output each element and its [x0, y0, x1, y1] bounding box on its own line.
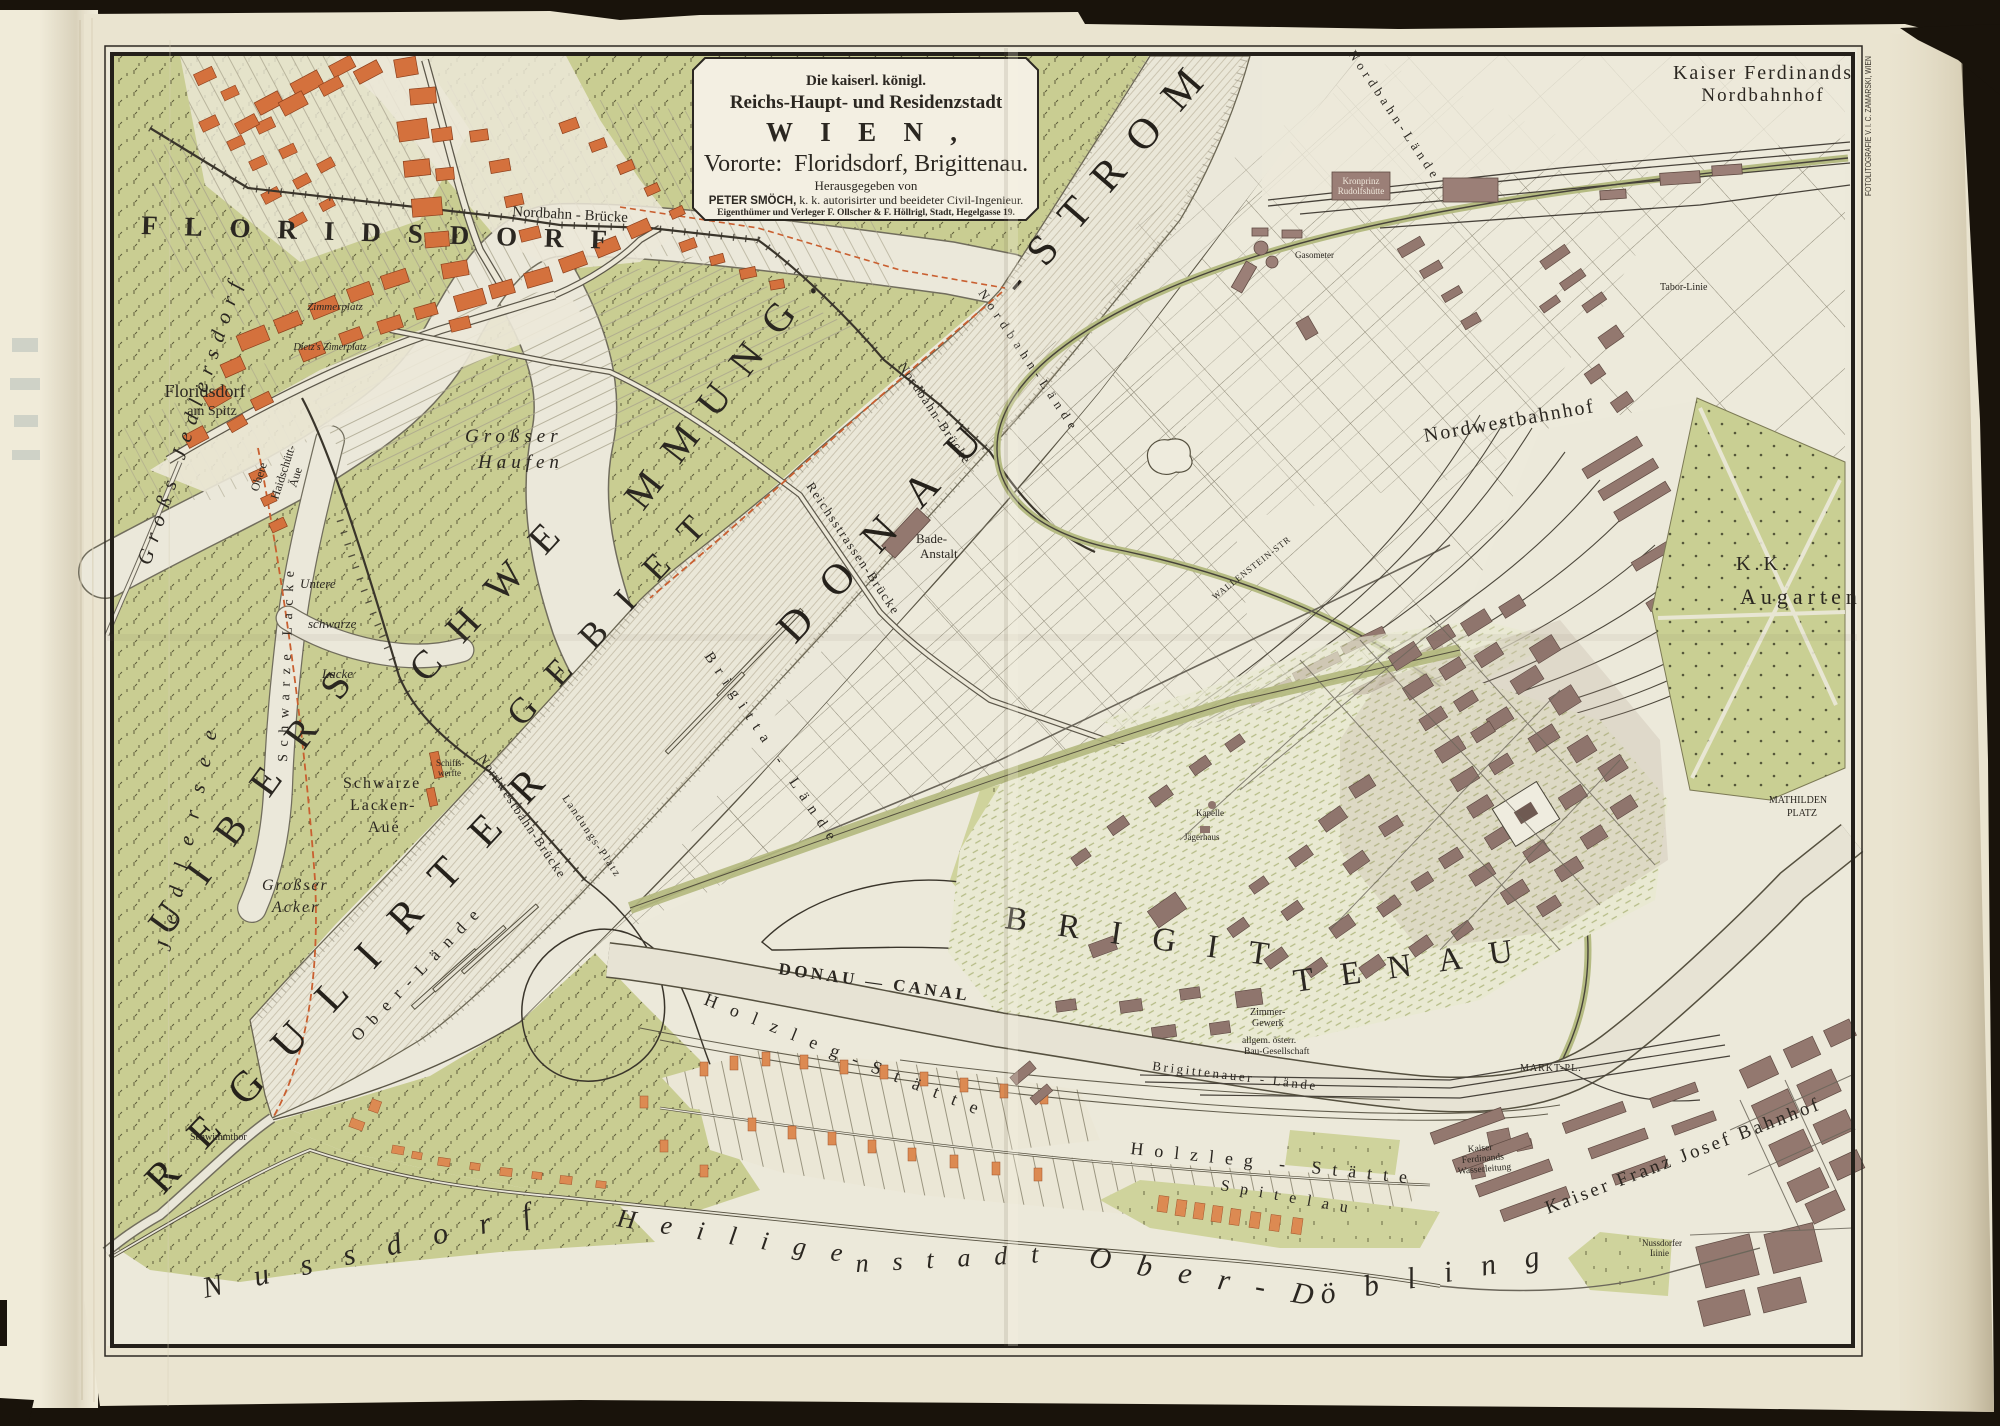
- svg-text:Großser: Großser: [465, 426, 563, 447]
- svg-text:Dietz's Zimerplatz: Dietz's Zimerplatz: [293, 342, 367, 353]
- svg-text:Anstalt: Anstalt: [920, 546, 958, 561]
- svg-text:Gasometer: Gasometer: [1295, 250, 1334, 260]
- svg-text:Lacken-: Lacken-: [350, 797, 416, 814]
- svg-text:Vororte: Floridsdorf, Brigitt: Vororte: Floridsdorf, Brigittenau.: [704, 151, 1028, 177]
- svg-text:Nordbahnhof: Nordbahnhof: [1701, 85, 1824, 106]
- svg-text:Reichs-Haupt- und Residenzstad: Reichs-Haupt- und Residenzstadt: [730, 92, 1003, 113]
- svg-text:Herausgegeben von: Herausgegeben von: [815, 178, 918, 193]
- svg-text:Tabor-Linie: Tabor-Linie: [1660, 282, 1708, 293]
- svg-text:FOTOLITOGRAFIE V. I. C. ZAMARS: FOTOLITOGRAFIE V. I. C. ZAMARSKI, WIEN: [1864, 56, 1873, 196]
- svg-text:MARKT-PL.: MARKT-PL.: [1520, 1063, 1582, 1074]
- svg-text:Die kaiserl. königl.: Die kaiserl. königl.: [806, 73, 926, 89]
- svg-text:Großser: Großser: [262, 877, 329, 894]
- svg-text:Kaiser Ferdinands: Kaiser Ferdinands: [1673, 62, 1853, 84]
- svg-text:Schwimmthor: Schwimmthor: [190, 1132, 247, 1143]
- svg-text:Zimmer-: Zimmer-: [1250, 1007, 1285, 1018]
- svg-text:werfte: werfte: [438, 768, 461, 778]
- svg-text:Kapelle: Kapelle: [1196, 808, 1224, 818]
- svg-text:Kronprinz: Kronprinz: [1343, 176, 1380, 186]
- svg-text:Schwarze: Schwarze: [343, 775, 421, 792]
- svg-text:Untere: Untere: [300, 576, 336, 591]
- svg-text:K.K.: K.K.: [1736, 553, 1791, 575]
- svg-text:am Spitz: am Spitz: [187, 404, 236, 419]
- svg-text:Floridsdorf: Floridsdorf: [165, 381, 246, 401]
- svg-text:Augarten: Augarten: [1740, 584, 1862, 609]
- svg-text:Rudolfshütte: Rudolfshütte: [1338, 186, 1385, 196]
- svg-text:Bau-Gesellschaft: Bau-Gesellschaft: [1244, 1046, 1310, 1057]
- svg-text:Nussdorfer: Nussdorfer: [1642, 1238, 1682, 1248]
- svg-text:Schiffs-: Schiffs-: [436, 758, 464, 768]
- svg-text:Acker: Acker: [271, 899, 319, 916]
- svg-text:Haufen: Haufen: [477, 452, 564, 473]
- svg-text:allgem. österr.: allgem. österr.: [1242, 1036, 1296, 1046]
- svg-text:Lacke: Lacke: [321, 666, 353, 681]
- svg-text:PETER SMÖCH, k. k. autorisirte: PETER SMÖCH, k. k. autorisirter und beei…: [709, 193, 1023, 207]
- svg-text:Bade-: Bade-: [916, 531, 947, 546]
- svg-text:Jägerhaus: Jägerhaus: [1184, 832, 1220, 842]
- svg-text:PLATZ: PLATZ: [1787, 808, 1817, 819]
- svg-text:Linie: Linie: [1650, 1248, 1669, 1258]
- svg-text:Eigenthümer und Verleger F. Ol: Eigenthümer und Verleger F. Ollscher & F…: [717, 208, 1015, 218]
- svg-text:Gewerk: Gewerk: [1252, 1018, 1284, 1029]
- svg-text:Zimmerplatz: Zimmerplatz: [307, 301, 363, 313]
- svg-text:MATHILDEN: MATHILDEN: [1769, 795, 1827, 806]
- svg-text:Aué: Aué: [368, 819, 401, 836]
- svg-text:schwarze: schwarze: [308, 616, 357, 631]
